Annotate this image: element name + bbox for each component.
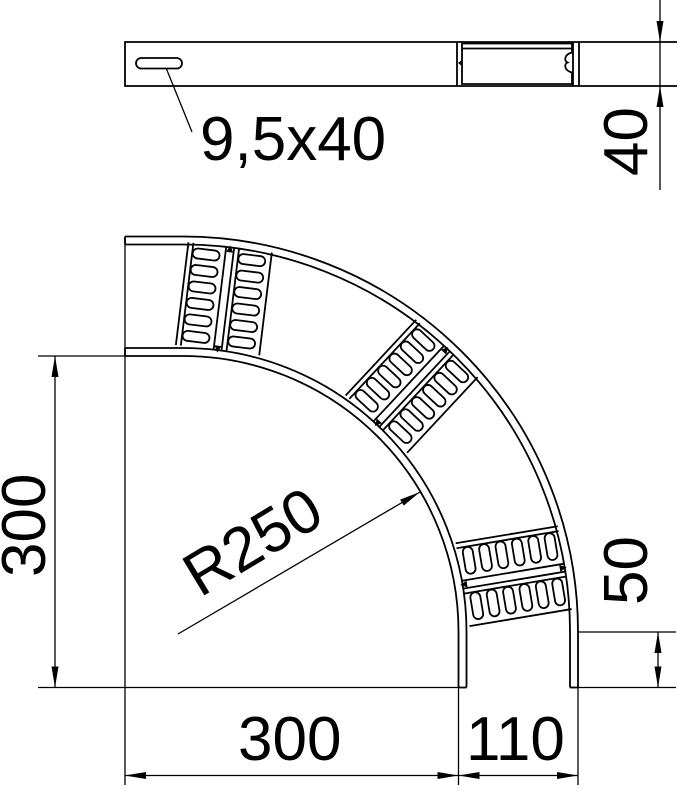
rung-slot: [365, 376, 392, 402]
dimension-arrow: [52, 356, 59, 377]
side-rail-bar: [125, 42, 677, 86]
rung-slot: [184, 314, 212, 327]
horizontal-extent-label: 300: [238, 705, 341, 774]
rung-slot: [232, 303, 260, 316]
slot-size-label: 9,5x40: [200, 105, 386, 174]
rung-slot: [387, 419, 414, 445]
technical-drawing-page: 9,5x40 40 R250: [0, 0, 677, 794]
rung-slot: [190, 264, 218, 277]
slot-leader-line: [167, 69, 193, 132]
rung-unit: [344, 318, 479, 454]
rung-slot: [410, 327, 437, 353]
rung-slot: [421, 383, 448, 409]
rung-slot: [236, 270, 264, 283]
dimension-arrow: [125, 772, 146, 779]
dimension-height-40: 40: [592, 0, 664, 190]
rung-slot: [511, 538, 525, 566]
rung-slot: [495, 541, 509, 569]
rung-slot: [470, 592, 484, 620]
rung-slot: [410, 395, 437, 421]
vertical-extent-label: 300: [0, 474, 59, 577]
rung-slot: [519, 583, 533, 611]
rung-slot: [182, 330, 210, 343]
dimension-tangent-50: 50: [579, 536, 677, 687]
dimension-bottom-300-110: 300 110: [125, 237, 578, 786]
rung-slot: [544, 532, 558, 560]
rung-slot: [478, 543, 492, 571]
rung-slot: [398, 407, 425, 433]
height-dim-label: 40: [592, 107, 661, 176]
width-label: 110: [466, 705, 565, 774]
technical-drawing: 9,5x40 40 R250: [0, 0, 677, 794]
rung-slot: [399, 339, 426, 365]
side-view: 9,5x40 40: [125, 0, 677, 190]
rung-slot: [186, 297, 214, 310]
plan-view-bend: R250 300 50: [0, 237, 676, 786]
coupler-connector: [457, 42, 579, 86]
dimension-arrow: [438, 772, 459, 779]
rung-slot: [535, 581, 549, 609]
rung-slot: [230, 319, 258, 332]
dimension-arrow: [657, 86, 664, 107]
dimension-arrow: [52, 667, 59, 688]
dimension-arrow: [657, 21, 664, 42]
rung-slot: [376, 364, 403, 390]
rung-slot: [551, 578, 565, 606]
rung-slot: [228, 336, 256, 349]
rung-unit: [176, 240, 273, 357]
dimension-arrow: [655, 632, 662, 653]
slot-hole: [136, 58, 182, 69]
dimension-arrow: [655, 667, 662, 688]
rung-slot: [528, 535, 542, 563]
rung-slot: [192, 248, 220, 261]
rung-slot: [486, 589, 500, 617]
dimension-radius-r250: R250: [172, 475, 422, 634]
tangent-length-label: 50: [592, 536, 661, 605]
rung-slot: [238, 254, 266, 267]
rung-unit: [453, 526, 573, 627]
rung-slot: [188, 281, 216, 294]
rung-slot: [387, 352, 414, 378]
rung-slot: [462, 546, 476, 574]
dimension-arrow: [400, 489, 422, 506]
rung-slot: [234, 286, 262, 299]
rung-slot: [353, 388, 380, 414]
rung-slot: [502, 586, 516, 614]
rung-slot: [432, 371, 459, 397]
rung-slot: [444, 359, 471, 385]
